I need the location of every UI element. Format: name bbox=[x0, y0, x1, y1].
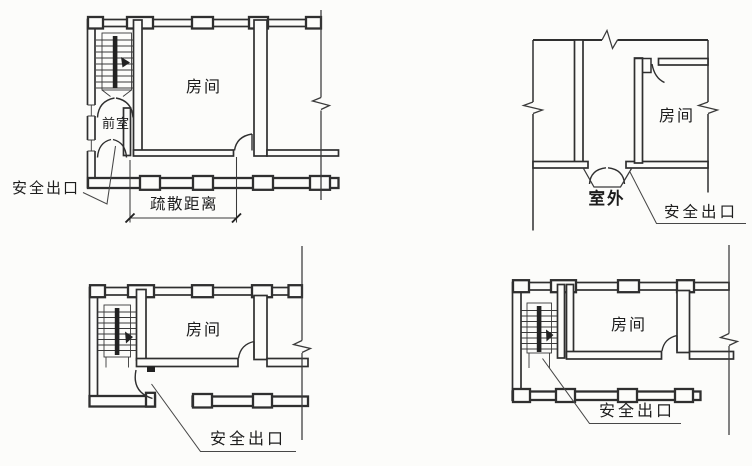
exterior-walls bbox=[88, 20, 339, 189]
wall-piers bbox=[88, 17, 330, 190]
label-safety-exit-top-right: 安全出口 bbox=[657, 204, 745, 220]
label-outdoor: 室外 bbox=[579, 190, 635, 207]
double-door-swing-vestibule bbox=[98, 140, 127, 158]
label-safety-exit-top-left: 安全出口 bbox=[6, 181, 86, 197]
evacuation-floor-plans-figure: 安全出口 前室 房间 疏散距离 房间 室外 安全出口 房间 安全出口 房间 安全… bbox=[0, 0, 752, 466]
break-line bbox=[294, 246, 311, 440]
wall-piers bbox=[90, 285, 302, 407]
floor-plan-drawings bbox=[0, 0, 752, 466]
stairs-symbol bbox=[522, 303, 558, 368]
stair-direction-arrow bbox=[125, 332, 133, 344]
stair-direction-arrow bbox=[121, 57, 130, 68]
stair-handrail bbox=[537, 306, 542, 352]
interior-walls bbox=[533, 40, 708, 168]
label-room-top-right: 房间 bbox=[651, 108, 703, 125]
wall-end-cap bbox=[146, 393, 155, 407]
stair-handrail bbox=[115, 308, 120, 355]
door-jamb-notch bbox=[147, 367, 155, 373]
break-line bbox=[524, 102, 543, 114]
stairs-symbol bbox=[98, 305, 137, 368]
room-door-swing bbox=[235, 134, 253, 151]
stair-direction-arrow bbox=[546, 330, 554, 342]
exit-double-door-swing bbox=[584, 168, 632, 187]
break-line bbox=[721, 245, 738, 435]
stair-handrail bbox=[113, 36, 118, 88]
break-line bbox=[313, 10, 330, 200]
label-safety-exit-bottom-right: 安全出口 bbox=[591, 403, 683, 420]
interior-walls bbox=[124, 20, 339, 156]
label-safety-exit-bottom-left: 安全出口 bbox=[202, 431, 294, 448]
stairs-symbol bbox=[96, 33, 134, 97]
label-room-bottom-right: 房间 bbox=[603, 317, 655, 334]
label-room-top-left: 房间 bbox=[178, 79, 230, 96]
break-line bbox=[602, 31, 618, 49]
label-vestibule: 前室 bbox=[98, 118, 134, 132]
label-room-bottom-left: 房间 bbox=[178, 322, 230, 339]
label-evacuation-distance: 疏散距离 bbox=[145, 196, 223, 212]
room-door-swing bbox=[662, 336, 677, 352]
room-door-swing bbox=[652, 64, 665, 83]
plan-bottom-left bbox=[90, 246, 311, 452]
room-door-swing bbox=[239, 342, 255, 359]
exterior-walls bbox=[513, 283, 730, 401]
